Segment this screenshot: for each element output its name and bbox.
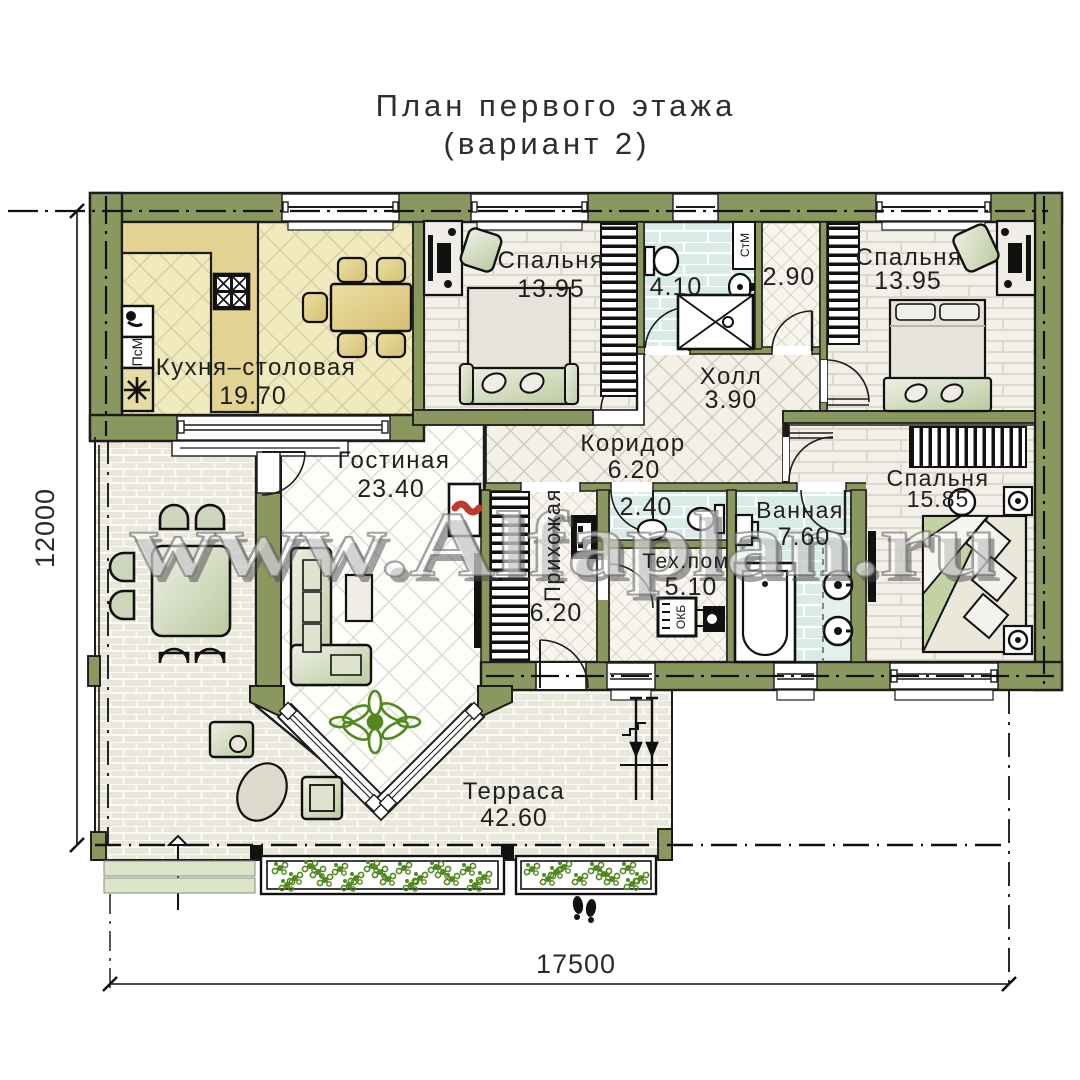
- svg-text:2.40: 2.40: [620, 493, 673, 521]
- svg-text:Коридор: Коридор: [580, 430, 685, 457]
- svg-text:12000: 12000: [30, 488, 60, 568]
- svg-text:7.60: 7.60: [778, 523, 831, 551]
- svg-text:План первого этажа: План первого этажа: [376, 88, 737, 123]
- svg-text:Спальня: Спальня: [498, 247, 605, 274]
- svg-text:Ванная: Ванная: [756, 497, 844, 523]
- svg-text:17500: 17500: [536, 949, 616, 979]
- svg-text:Тех.пом: Тех.пом: [642, 550, 729, 573]
- svg-text:5.10: 5.10: [665, 573, 718, 601]
- svg-text:ПсМ: ПсМ: [129, 338, 145, 367]
- svg-text:3.90: 3.90: [705, 386, 758, 414]
- svg-text:СтМ: СтМ: [738, 233, 752, 257]
- svg-text:Кухня–столовая: Кухня–столовая: [156, 354, 357, 381]
- svg-text:(вариант 2): (вариант 2): [444, 126, 651, 161]
- svg-text:6.20: 6.20: [530, 599, 583, 627]
- svg-text:19.70: 19.70: [219, 382, 287, 410]
- svg-text:15.85: 15.85: [907, 486, 970, 512]
- svg-text:13.95: 13.95: [874, 267, 942, 295]
- svg-text:4.10: 4.10: [650, 273, 703, 301]
- svg-text:2.90: 2.90: [763, 263, 816, 291]
- svg-text:6.20: 6.20: [608, 456, 661, 484]
- svg-text:ОКБ: ОКБ: [674, 605, 688, 629]
- svg-text:Терраса: Терраса: [463, 778, 566, 805]
- svg-text:13.95: 13.95: [517, 275, 585, 303]
- svg-text:Прихожая: Прихожая: [540, 488, 565, 602]
- svg-text:Гостиная: Гостиная: [338, 447, 451, 474]
- svg-text:23.40: 23.40: [357, 475, 425, 503]
- svg-text:42.60: 42.60: [480, 804, 548, 832]
